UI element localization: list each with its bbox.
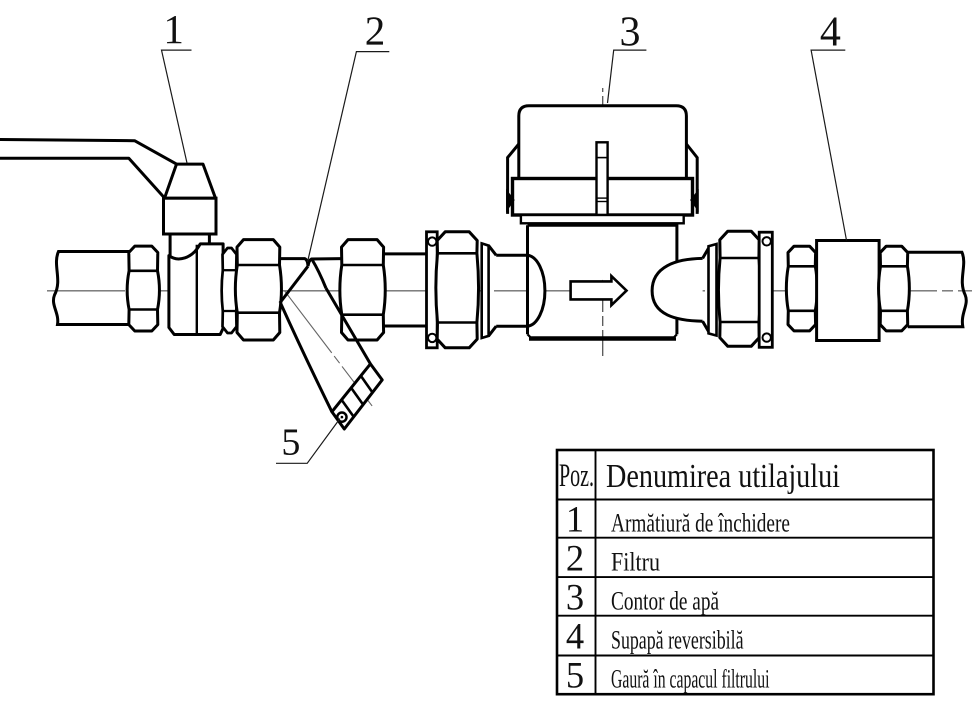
svg-text:Gaură în capacul filtrului: Gaură în capacul filtrului	[611, 664, 770, 693]
svg-text:1: 1	[566, 499, 584, 540]
svg-text:Armătiură de închidere: Armătiură de închidere	[611, 509, 790, 538]
svg-text:Supapă reversibilă: Supapă reversibilă	[611, 625, 744, 654]
svg-text:4: 4	[566, 615, 584, 656]
svg-text:Contor de apă: Contor de apă	[611, 586, 719, 615]
svg-text:3: 3	[620, 10, 641, 56]
svg-text:1: 1	[163, 6, 184, 52]
svg-text:3: 3	[566, 576, 584, 617]
svg-text:5: 5	[281, 421, 300, 463]
svg-text:Filtru: Filtru	[611, 547, 660, 576]
svg-text:5: 5	[566, 654, 584, 695]
svg-text:4: 4	[820, 10, 841, 56]
svg-text:2: 2	[365, 7, 386, 53]
svg-text:Denumirea utilajului: Denumirea utilajului	[606, 458, 840, 495]
svg-text:Poz.: Poz.	[559, 458, 594, 494]
svg-text:2: 2	[566, 537, 584, 578]
